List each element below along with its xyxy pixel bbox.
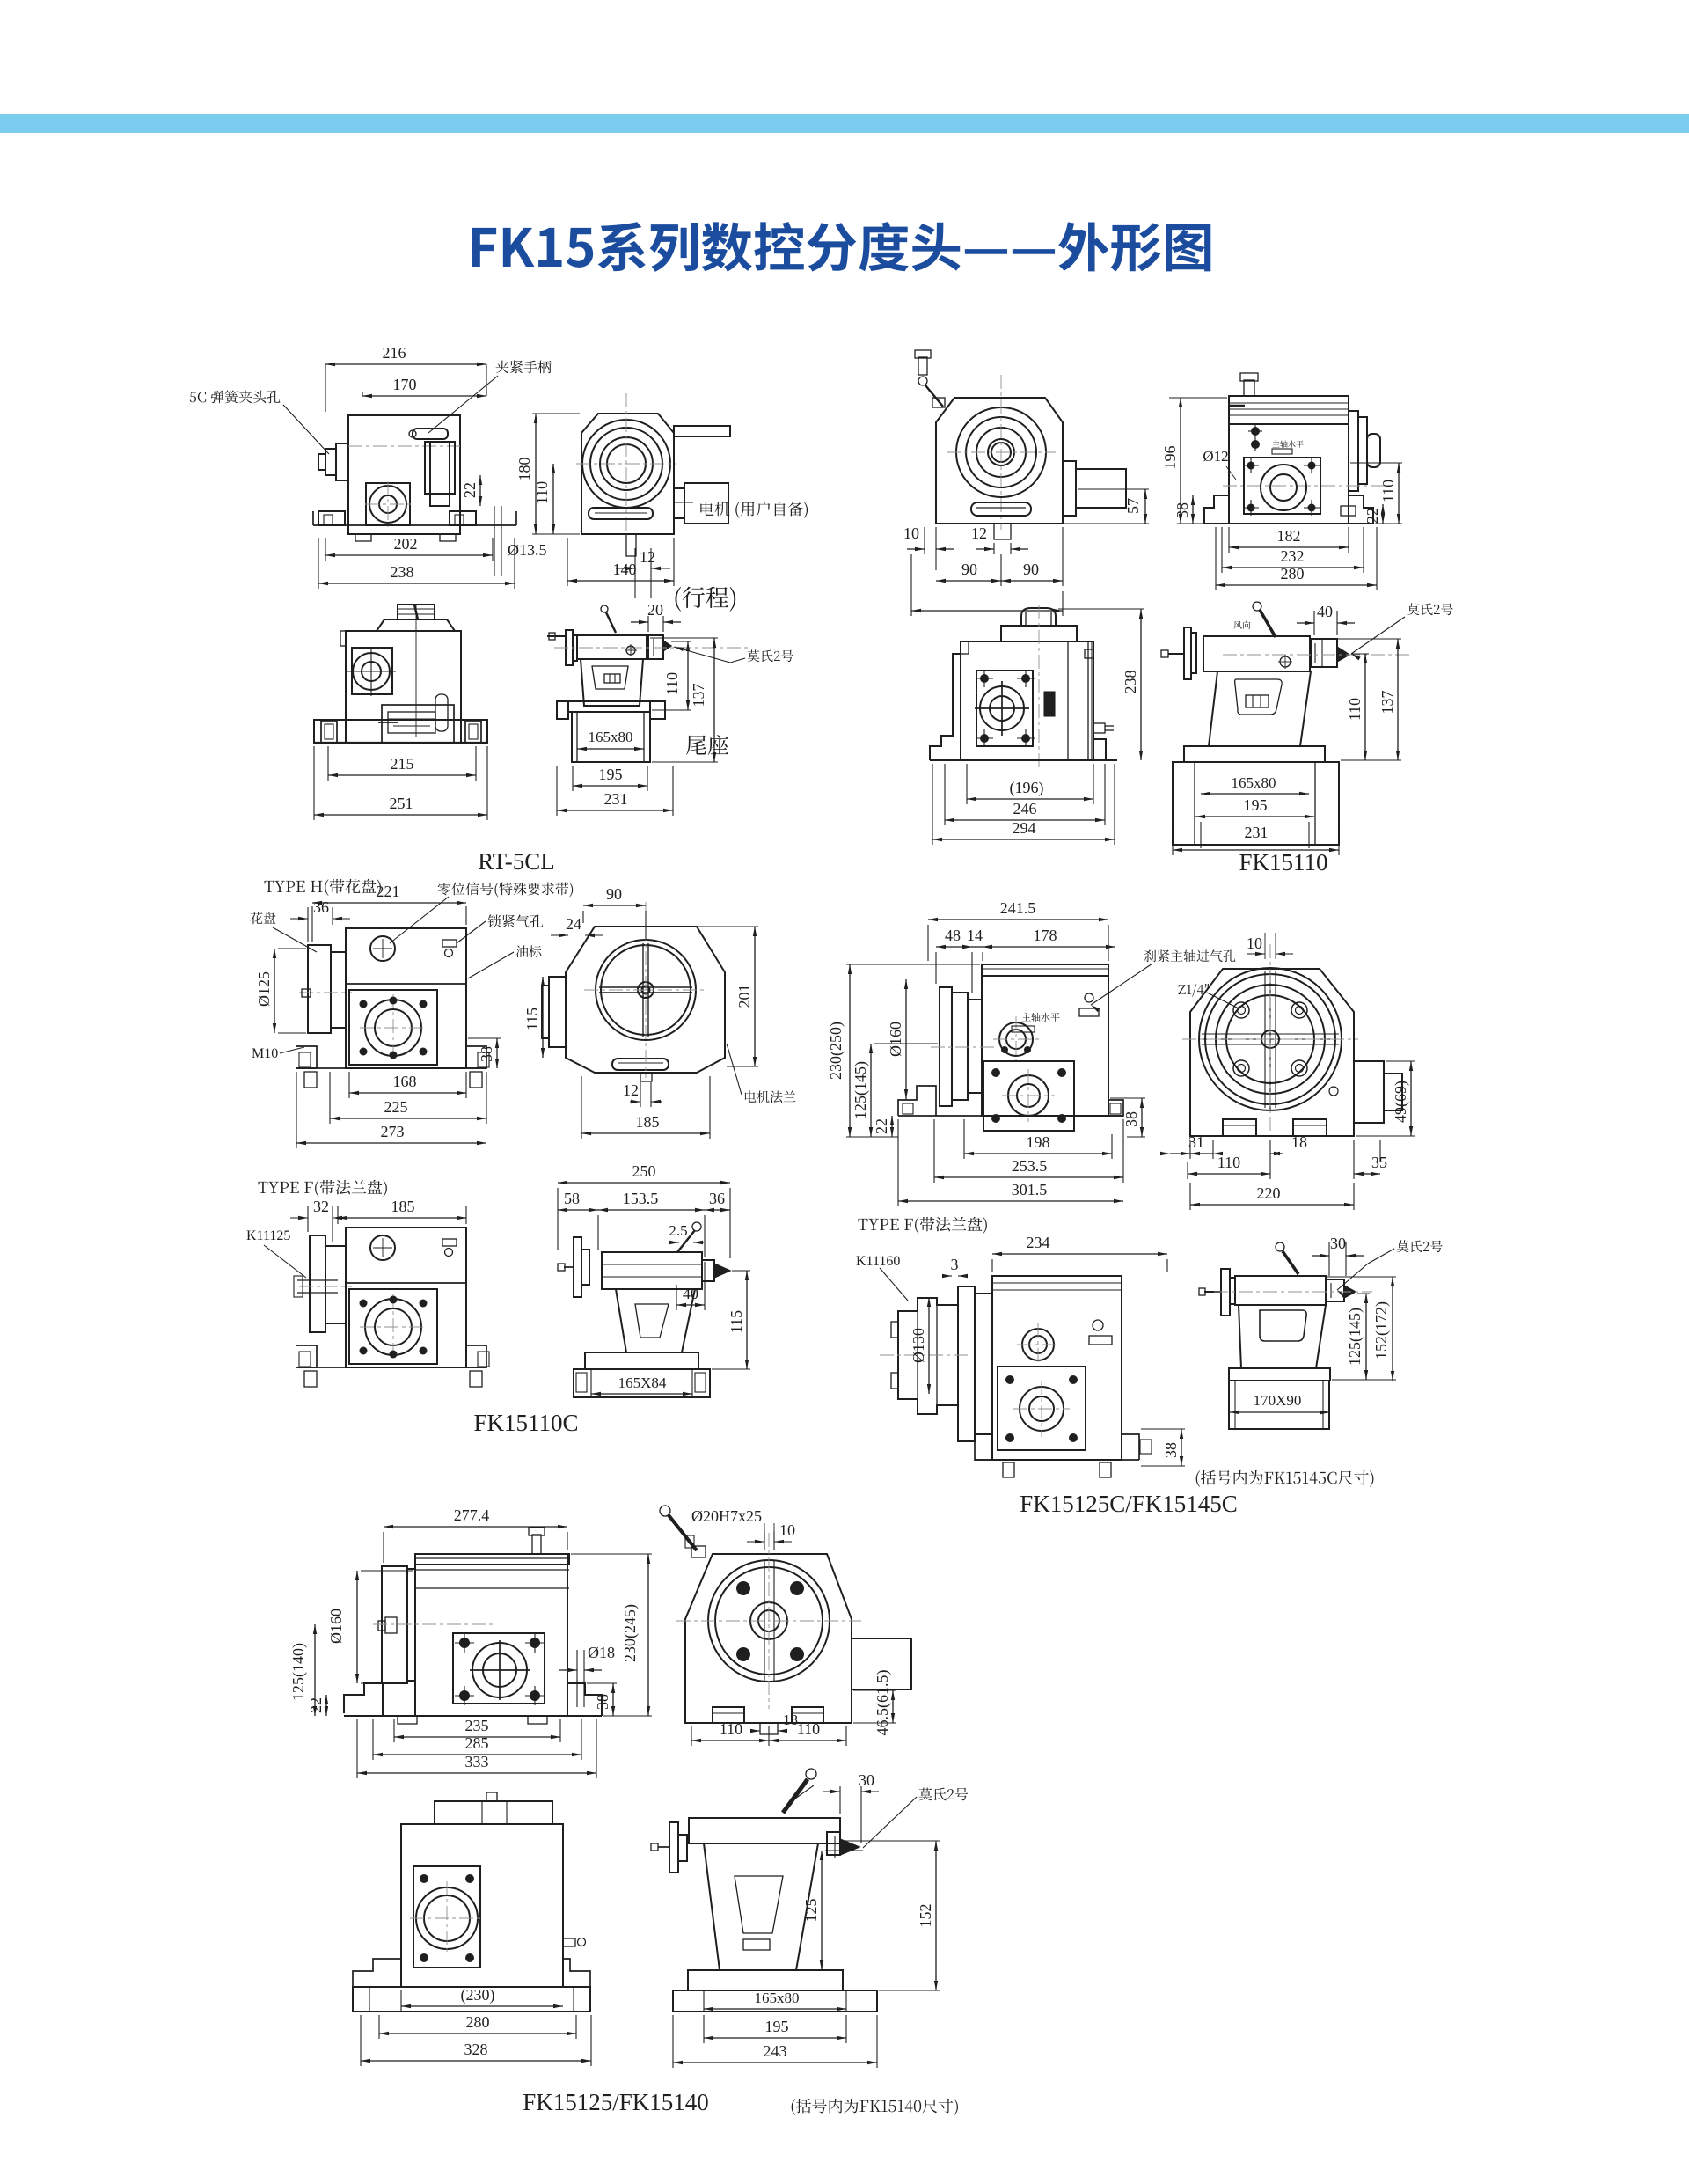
svg-text:20: 20 [647,601,663,619]
svg-text:22: 22 [1364,508,1381,524]
svg-text:198: 198 [1027,1133,1050,1151]
svg-text:195: 195 [599,766,623,783]
svg-text:30: 30 [1330,1235,1346,1252]
svg-text:277.4: 277.4 [454,1506,490,1524]
svg-text:125(140): 125(140) [289,1643,308,1701]
svg-text:170X90: 170X90 [1254,1392,1302,1409]
svg-text:K11160: K11160 [856,1254,900,1269]
svg-text:Ø160: Ø160 [327,1609,345,1644]
svg-text:125(145): 125(145) [1346,1308,1364,1366]
svg-text:3: 3 [951,1256,959,1273]
svg-text:185: 185 [636,1113,660,1131]
svg-text:38: 38 [1162,1442,1180,1458]
svg-text:31: 31 [1188,1133,1204,1151]
svg-text:12: 12 [623,1081,639,1099]
svg-text:137: 137 [690,684,707,707]
svg-text:110: 110 [1379,480,1397,502]
svg-text:48: 48 [945,927,961,944]
svg-text:238: 238 [1122,671,1139,694]
svg-text:168: 168 [393,1073,417,1090]
svg-text:35: 35 [1371,1154,1387,1171]
svg-text:FK15125/FK15140: FK15125/FK15140 [523,2089,709,2115]
svg-text:180: 180 [515,458,533,481]
svg-text:115: 115 [523,1008,541,1030]
svg-text:Ø18: Ø18 [588,1644,615,1661]
svg-text:Ø13.5: Ø13.5 [508,541,547,559]
svg-text:234: 234 [1027,1234,1050,1251]
svg-text:58: 58 [564,1190,580,1207]
svg-text:273: 273 [381,1123,405,1140]
svg-text:221: 221 [377,883,400,900]
svg-text:10: 10 [779,1521,795,1539]
svg-text:14: 14 [967,927,983,944]
svg-text:49(69): 49(69) [1392,1081,1410,1123]
svg-text:2.5: 2.5 [669,1222,687,1239]
svg-text:165x80: 165x80 [1232,774,1276,791]
svg-text:238: 238 [391,563,414,581]
svg-text:46.5(61.5): 46.5(61.5) [874,1670,892,1736]
svg-text:110: 110 [1217,1154,1240,1171]
svg-text:225: 225 [384,1098,408,1116]
svg-text:195: 195 [765,2018,789,2035]
svg-text:196: 196 [1161,446,1179,470]
svg-text:18: 18 [783,1711,798,1728]
svg-text:32: 32 [313,1198,329,1215]
svg-text:38: 38 [478,1046,495,1062]
svg-text:K11125: K11125 [246,1228,290,1243]
svg-text:38: 38 [594,1694,611,1710]
svg-text:294: 294 [1013,819,1036,837]
svg-text:90: 90 [606,885,622,903]
svg-text:40: 40 [1317,603,1333,620]
svg-text:18: 18 [1291,1133,1307,1151]
svg-text:280: 280 [466,2013,490,2031]
svg-text:30: 30 [859,1771,874,1789]
svg-text:Ø160: Ø160 [887,1022,904,1057]
svg-text:285: 285 [465,1734,489,1752]
svg-text:232: 232 [1281,547,1305,565]
svg-text:215: 215 [391,755,414,773]
svg-text:36: 36 [313,898,329,916]
svg-text:250: 250 [632,1162,656,1180]
svg-text:110: 110 [720,1720,742,1738]
svg-text:M10: M10 [252,1046,278,1061]
svg-text:38: 38 [1174,502,1191,518]
svg-text:12: 12 [640,548,655,566]
svg-text:301.5: 301.5 [1012,1181,1048,1198]
svg-text:110: 110 [533,481,551,504]
svg-text:230(250): 230(250) [827,1022,845,1080]
svg-text:216: 216 [383,344,406,362]
svg-text:165x80: 165x80 [755,1990,800,2006]
svg-text:241.5: 241.5 [1000,899,1036,917]
svg-text:22: 22 [873,1118,890,1134]
svg-text:FK15110: FK15110 [1239,849,1327,876]
svg-text:280: 280 [1281,565,1305,583]
svg-text:10: 10 [903,524,919,542]
svg-text:165X84: 165X84 [618,1374,667,1391]
svg-text:153.5: 153.5 [623,1190,659,1207]
svg-text:110: 110 [797,1720,820,1738]
svg-text:22: 22 [307,1697,325,1713]
svg-text:230(245): 230(245) [621,1604,640,1662]
svg-text:328: 328 [464,2041,488,2058]
svg-text:(230): (230) [461,1986,495,2004]
svg-text:246: 246 [1013,800,1037,817]
svg-text:140: 140 [613,561,637,578]
svg-text:137: 137 [1378,691,1396,715]
svg-text:243: 243 [764,2042,787,2060]
svg-text:178: 178 [1034,927,1057,944]
svg-text:235: 235 [465,1717,489,1734]
svg-text:115: 115 [728,1310,745,1333]
svg-text:152(172): 152(172) [1372,1301,1391,1360]
svg-text:90: 90 [1023,561,1039,578]
svg-text:251: 251 [390,795,413,812]
svg-text:253.5: 253.5 [1012,1157,1048,1175]
svg-text:Ø12: Ø12 [1203,448,1228,465]
svg-text:125: 125 [802,1899,820,1923]
svg-text:165x80: 165x80 [589,729,633,745]
svg-text:152: 152 [917,1904,934,1928]
svg-text:RT-5CL: RT-5CL [478,848,554,875]
svg-text:40: 40 [683,1285,698,1302]
svg-text:Ø130: Ø130 [910,1328,927,1363]
svg-text:90: 90 [961,561,977,578]
svg-text:182: 182 [1277,527,1301,545]
svg-text:125(145): 125(145) [852,1061,870,1119]
svg-text:201: 201 [735,985,753,1008]
svg-text:FK15125C/FK15145C: FK15125C/FK15145C [1020,1491,1238,1517]
svg-text:110: 110 [663,672,681,695]
svg-text:Ø20H7x25: Ø20H7x25 [691,1507,762,1525]
svg-text:(196): (196) [1010,779,1044,797]
svg-text:202: 202 [394,535,418,553]
svg-text:22: 22 [461,482,479,498]
svg-text:231: 231 [1245,824,1269,841]
svg-text:333: 333 [465,1753,489,1770]
svg-text:38: 38 [1122,1111,1140,1127]
svg-text:10: 10 [1247,934,1262,952]
svg-text:Ø125: Ø125 [255,971,273,1007]
svg-text:24: 24 [566,915,581,933]
svg-text:170: 170 [393,376,417,393]
svg-text:12: 12 [971,524,987,542]
svg-text:195: 195 [1244,796,1268,814]
svg-text:36: 36 [709,1190,725,1207]
svg-text:220: 220 [1257,1184,1281,1202]
svg-text:57: 57 [1124,498,1142,514]
svg-text:185: 185 [391,1198,415,1215]
svg-text:110: 110 [1346,698,1364,721]
svg-text:231: 231 [604,790,628,808]
svg-text:FK15110C: FK15110C [473,1410,578,1436]
